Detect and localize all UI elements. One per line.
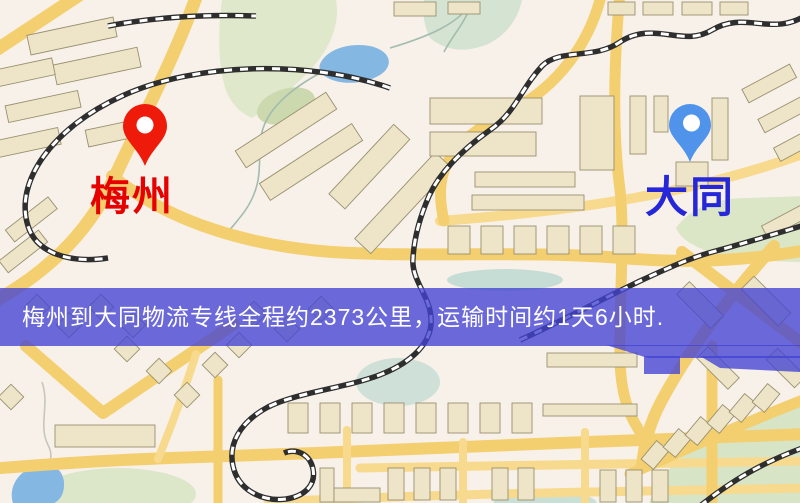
- map-background: [0, 0, 800, 503]
- logistics-route-map: 梅州 大同 梅州到大同物流专线全程约2373公里，运输时间约1天6小时.: [0, 0, 800, 503]
- destination-city-label: 大同: [645, 177, 735, 220]
- destination-pin-icon: [668, 104, 712, 164]
- origin-city-label: 梅州: [90, 177, 174, 217]
- origin-pin-icon: [122, 104, 168, 168]
- route-info-text: 梅州到大同物流专线全程约2373公里，运输时间约1天6小时.: [22, 288, 664, 346]
